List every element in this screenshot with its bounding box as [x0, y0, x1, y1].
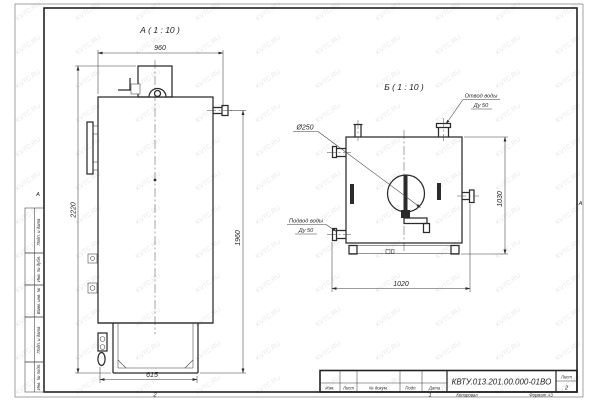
side-cell-2: Инв. № дубл.	[36, 256, 41, 282]
dim-1030: 1030	[497, 191, 504, 207]
footer-format-label: Формат А3	[529, 393, 553, 398]
view-b: Б ( 1 : 10 )	[287, 82, 508, 292]
inlet-label: Подвод воды	[289, 219, 323, 225]
inlet-dn-label: Ду 50	[298, 228, 314, 234]
side-cell-4: Подп. и дата	[36, 326, 41, 354]
zone-number-right: 1	[428, 393, 431, 399]
tb-sheet-number: 2	[564, 386, 569, 392]
zone-letter-right: А	[578, 201, 583, 207]
tb-col-podp: Подп.	[405, 386, 416, 391]
view-a-label: А ( 1 : 10 )	[139, 25, 180, 35]
title-block: Изм. Лист № докум. Подп. Дата КВТУ.013.2…	[320, 371, 577, 393]
footer-copied-label: Копировал	[456, 393, 478, 398]
view-b-label: Б ( 1 : 10 )	[384, 82, 424, 92]
tb-col-docnum: № докум.	[369, 386, 388, 391]
view-a: А ( 1 : 10 )	[71, 25, 247, 383]
dim-960: 960	[154, 45, 166, 52]
doc-number: КВТУ.013.201.00.000-01ВО	[452, 378, 552, 387]
zone-letter-left: А	[35, 192, 40, 198]
tb-sheet-label: Лист	[560, 375, 572, 380]
view-b-dimensions: 1020 1030	[332, 137, 508, 292]
outlet-dn-label: Ду 50	[473, 103, 489, 109]
side-cell-1: Подп. и дата	[36, 218, 41, 246]
dim-1020: 1020	[393, 281, 409, 288]
tb-col-izm: Изм.	[325, 386, 334, 391]
view-b-callouts: Ø250 Отвод воды Ду 50 Подвод воды Ду 50	[287, 94, 500, 235]
flue-diameter-label: Ø250	[295, 125, 313, 132]
drawing-sheet: KVTC.RUKVTC.RUKVTC.RUKVTC.RUKVTC.RUKVTC.…	[0, 0, 600, 400]
outlet-label: Отвод воды	[465, 94, 498, 100]
side-cell-5: Инв. № подл.	[36, 364, 41, 391]
tb-col-list: Лист	[342, 386, 354, 391]
zone-number-left: 2	[152, 393, 157, 399]
tb-col-data: Дата	[428, 386, 441, 391]
view-a-geometry	[87, 60, 233, 373]
side-column: Подп. и дата Инв. № дубл. Взам. инв. № П…	[25, 208, 44, 392]
view-b-geometry	[327, 118, 479, 254]
dim-1960: 1960	[235, 230, 242, 246]
drawing-canvas: А А 2 1 Копировал Формат А3 Подп. и дата…	[0, 0, 600, 400]
dim-615: 615	[146, 372, 158, 379]
dim-2220: 2220	[71, 202, 78, 219]
side-cell-3: Взам. инв. №	[36, 287, 41, 314]
